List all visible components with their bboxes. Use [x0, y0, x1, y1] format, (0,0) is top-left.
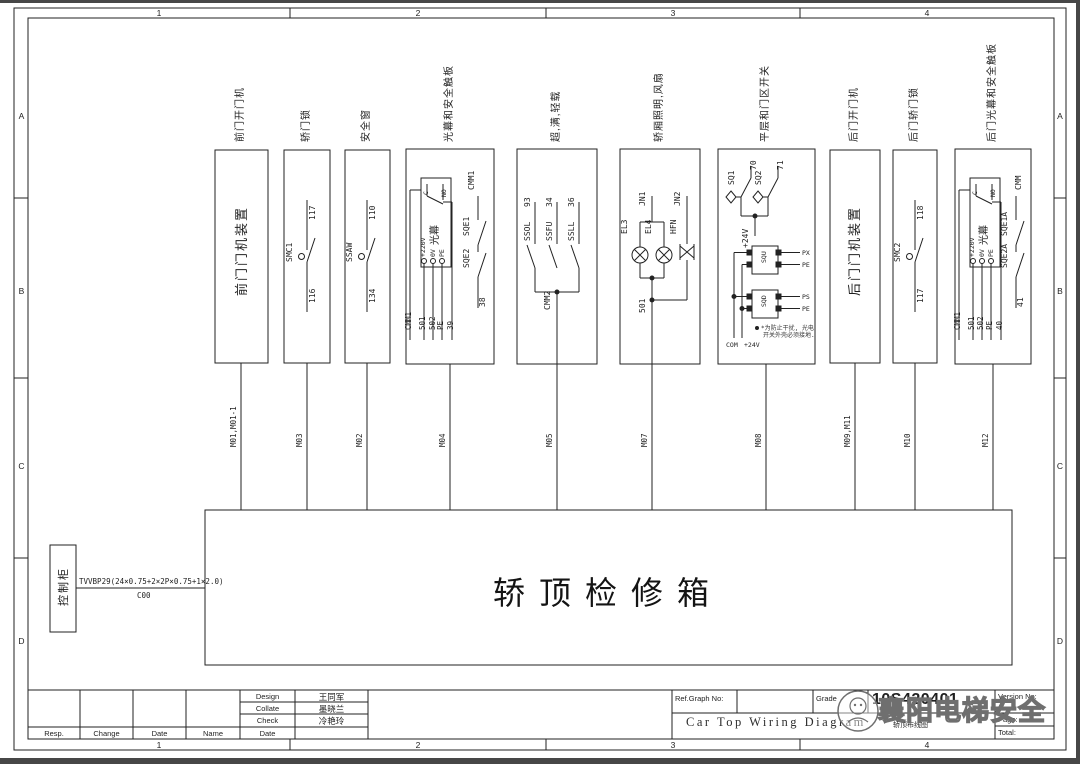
lead-cmm1: CMM1	[404, 312, 414, 330]
titleblock-resp: Resp.	[28, 729, 80, 739]
title-front-door-operator: 前门开门机	[235, 87, 247, 142]
sensor-squ-label: SQU	[759, 251, 769, 263]
lead-cmm1-rear: CMM1	[953, 312, 963, 330]
watermark: 襄阳电梯安全	[828, 688, 1068, 738]
switch-ssfu: SSFU	[545, 222, 555, 241]
terminal-c: C	[421, 191, 431, 195]
ruler-col-2-bottom: 2	[290, 740, 546, 750]
terminal-pe-rear: PE	[986, 249, 996, 257]
cable-m10: M10	[903, 433, 913, 447]
watermark-text: 襄阳电梯安全	[878, 689, 1046, 728]
bus-com: COM	[726, 340, 738, 350]
wire-116: 116	[308, 289, 318, 303]
design-name: 王同军	[295, 692, 368, 702]
rear-light-curtain-label: 光幕	[979, 225, 990, 245]
wire-jn2: JN2	[673, 192, 683, 206]
bus-24v: +24V	[744, 340, 760, 350]
sensor-sqd-label: SQD	[759, 295, 769, 307]
ruler-col-2-top: 2	[290, 8, 546, 18]
cable-m04: M04	[438, 433, 448, 447]
wire-34: 34	[545, 197, 555, 207]
ruler-row-a-right: A	[1054, 111, 1066, 121]
title-lighting-fan: 轿厢照明,风扇	[654, 72, 666, 142]
cable-m09-m11: M09,M11	[843, 415, 853, 447]
cable-m07: M07	[640, 433, 650, 447]
design-label: Design	[240, 692, 295, 702]
ruler-row-c-left: C	[15, 461, 28, 471]
terminal-no: NO	[439, 189, 449, 197]
collate-label: Collate	[240, 704, 295, 714]
light-curtain-label: 光幕	[430, 225, 441, 245]
date-row-label: Date	[240, 729, 295, 739]
fan-hfn: HFN	[669, 220, 679, 234]
wire-70: 70	[749, 160, 759, 170]
ruler-row-b-right: B	[1054, 286, 1066, 296]
wire-117-rear: 117	[916, 289, 926, 303]
inspection-box-label: 轿顶检修箱	[440, 568, 776, 614]
lead-39: 39	[446, 321, 456, 330]
wire-cmm1-top: CMM1	[467, 171, 477, 190]
title-car-door-lock: 轿门锁	[301, 109, 313, 142]
ruler-row-a-left: A	[15, 111, 28, 121]
titleblock-date: Date	[133, 729, 186, 739]
cable-m08: M08	[754, 433, 764, 447]
wire-cmm-top-rear: CMM	[1014, 176, 1024, 190]
check-label: Check	[240, 716, 295, 726]
terminal-pe-1: PE	[802, 260, 810, 270]
ruler-col-4-bottom: 4	[800, 740, 1054, 750]
lamp-el3: EL3	[620, 220, 630, 234]
lead-40: 40	[995, 321, 1005, 330]
cable-spec: TVVBP29(24×0.75+2×2P×0.75+1×2.0)	[79, 577, 224, 587]
cable-m02: M02	[355, 433, 365, 447]
wire-110: 110	[368, 206, 378, 220]
wire-24v: +24V	[741, 229, 751, 248]
front-door-device-label: 前门门机装置	[234, 206, 249, 296]
sensor-sq2: SQ2	[754, 171, 764, 185]
wire-501: 501	[638, 299, 648, 313]
cable-m12: M12	[981, 433, 991, 447]
terminal-c-rear: C	[970, 191, 980, 195]
drawing-sheet: 1 2 3 4 1 2 3 4 A B C D A B C D 前门开门机 轿门…	[0, 0, 1080, 764]
wire-118: 118	[916, 206, 926, 220]
ruler-col-3-top: 3	[546, 8, 800, 18]
switch-ssll: SSLL	[567, 222, 577, 241]
ruler-col-1-top: 1	[28, 8, 290, 18]
wire-71: 71	[776, 160, 786, 170]
ruler-col-1-bottom: 1	[28, 740, 290, 750]
wire-134: 134	[368, 289, 378, 303]
terminal-ps: PS	[802, 292, 810, 302]
switch-ssol: SSOL	[523, 222, 533, 241]
ruler-row-c-right: C	[1054, 461, 1066, 471]
check-name: 冷艳玲	[295, 716, 368, 726]
terminal-pe-2: PE	[802, 304, 810, 314]
title-load-switches: 超,满,轻载	[551, 90, 563, 142]
lead-pe: PE	[436, 321, 446, 330]
title-rear-light-curtain: 后门光幕和安全触板	[987, 43, 999, 142]
terminal-pe: PE	[437, 249, 447, 257]
switch-sqe1: SQE1	[462, 217, 472, 236]
switch-sqe1a: SQE1A	[1000, 212, 1010, 236]
ruler-col-3-bottom: 3	[546, 740, 800, 750]
collate-name: 墨晓兰	[295, 704, 368, 714]
wire-36: 36	[567, 197, 577, 207]
wire-cmm2: CMM2	[543, 291, 553, 310]
ruler-col-4-top: 4	[800, 8, 1054, 18]
wire-117: 117	[308, 206, 318, 220]
watermark-logo-icon	[828, 688, 884, 736]
titleblock-change: Change	[80, 729, 133, 739]
title-safety-window: 安全窗	[361, 109, 373, 142]
sensor-sq1: SQ1	[727, 171, 737, 185]
terminal-220v: +220V	[418, 237, 428, 257]
lead-501: 501	[418, 316, 428, 330]
lead-pe-rear: PE	[985, 321, 995, 330]
cable-m05: M05	[545, 433, 555, 447]
switch-sqe2: SQE2	[462, 249, 472, 268]
ref-graph-label: Ref.Graph No:	[675, 694, 723, 704]
rear-door-device-label: 后门门机装置	[847, 206, 862, 296]
wire-jn1: JN1	[638, 192, 648, 206]
wire-93: 93	[523, 197, 533, 207]
switch-ssaw: SSAW	[345, 243, 355, 262]
lamp-el4: EL4	[644, 220, 654, 234]
cable-code: C00	[137, 591, 151, 601]
ruler-row-d-right: D	[1054, 636, 1066, 646]
title-rear-door-lock: 后门轿门锁	[909, 87, 921, 142]
switch-sqe2a: SQE2A	[1000, 244, 1010, 268]
cable-m03: M03	[295, 433, 305, 447]
wire-38: 38	[478, 297, 488, 307]
title-light-curtain: 光幕和安全触板	[444, 65, 456, 142]
switch-smc1: SMC1	[285, 243, 295, 262]
terminal-px: PX	[802, 248, 810, 258]
ruler-row-d-left: D	[15, 636, 28, 646]
ruler-row-b-left: B	[15, 286, 28, 296]
terminal-no-rear: NO	[988, 189, 998, 197]
switch-smc2: SMC2	[893, 243, 903, 262]
wire-41: 41	[1016, 297, 1026, 307]
title-rear-door-operator: 后门开门机	[849, 87, 861, 142]
terminal-220v-rear: +220V	[967, 237, 977, 257]
ground-note-line2: 开关外壳必须接地.	[763, 331, 815, 341]
cable-m01: M01,M01-1	[229, 406, 239, 447]
control-cabinet-label: 控制柜	[59, 567, 69, 606]
title-leveling-doorzone: 平层和门区开关	[760, 65, 772, 142]
titleblock-name: Name	[186, 729, 240, 739]
